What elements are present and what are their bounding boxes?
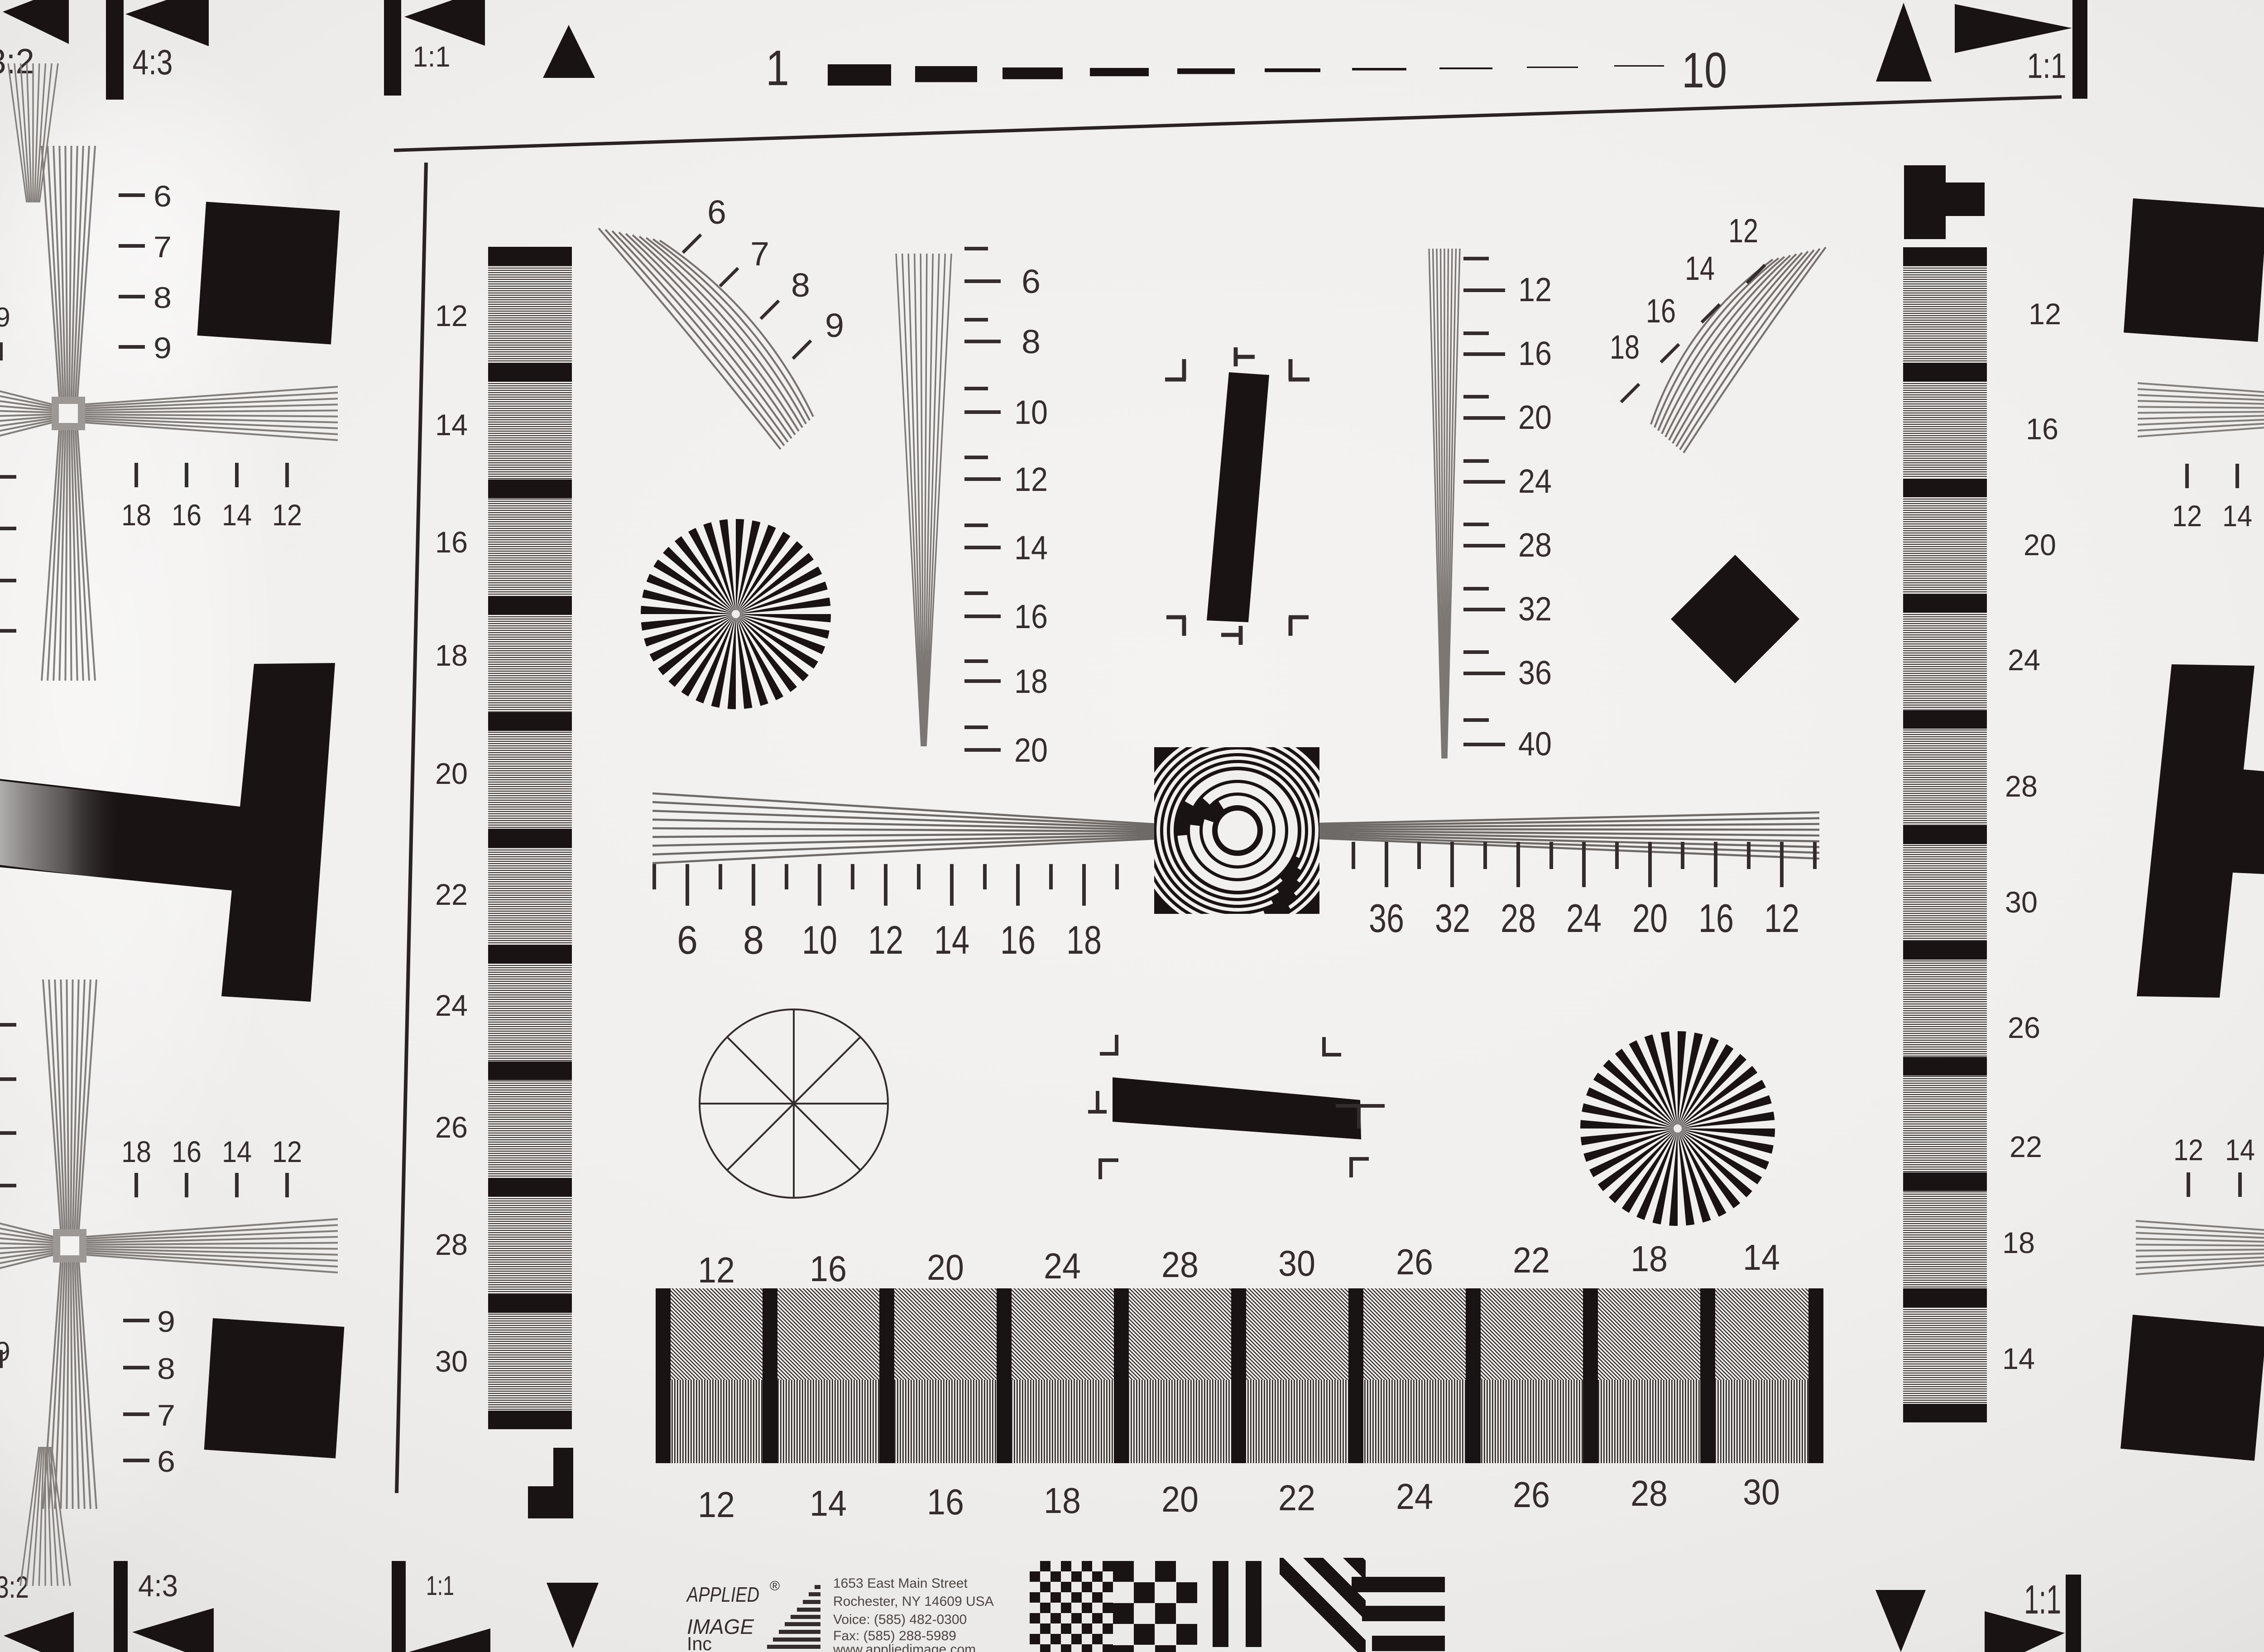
svg-text:24: 24 [1518,462,1552,500]
svg-text:32: 32 [1518,590,1552,628]
svg-text:3:2: 3:2 [0,41,34,81]
svg-text:28: 28 [1631,1473,1668,1513]
svg-text:20: 20 [1161,1479,1199,1519]
svg-text:4:3: 4:3 [138,1569,178,1603]
svg-text:26: 26 [435,1110,468,1144]
svg-text:18: 18 [435,639,468,672]
svg-text:6: 6 [677,917,698,962]
svg-text:1: 1 [766,40,789,96]
svg-text:4:3: 4:3 [133,42,173,82]
svg-text:14: 14 [2222,499,2252,533]
svg-text:16: 16 [435,525,468,559]
svg-text:®: ® [770,1579,780,1594]
svg-text:12: 12 [1764,896,1799,941]
svg-text:20: 20 [1518,399,1552,436]
svg-text:1653 East Main Street: 1653 East Main Street [833,1576,968,1591]
svg-text:22: 22 [435,878,468,911]
svg-text:16: 16 [1518,335,1552,372]
svg-text:14: 14 [2225,1133,2255,1167]
svg-text:14: 14 [1685,250,1715,287]
svg-text:1:1: 1:1 [413,40,451,73]
svg-text:18: 18 [121,498,151,532]
svg-text:12: 12 [2029,297,2061,331]
svg-text:7: 7 [153,230,172,264]
svg-text:9: 9 [157,1305,175,1338]
svg-text:18: 18 [1066,917,1102,962]
svg-text:18: 18 [2002,1226,2035,1259]
svg-text:12: 12 [698,1484,735,1525]
svg-text:12: 12 [868,917,903,962]
svg-text:36: 36 [1369,896,1404,941]
svg-text:1:1: 1:1 [2024,1577,2061,1623]
svg-text:14: 14 [1014,529,1048,567]
svg-text:28: 28 [2005,769,2038,803]
svg-text:18: 18 [121,1135,151,1168]
svg-text:12: 12 [1728,212,1758,250]
svg-text:24: 24 [435,989,468,1022]
svg-text:16: 16 [172,498,201,532]
svg-text:8: 8 [1022,323,1041,360]
svg-text:30: 30 [435,1345,468,1378]
svg-text:16: 16 [1698,896,1734,941]
svg-text:18: 18 [1014,663,1048,700]
svg-text:1:1: 1:1 [2027,46,2067,86]
svg-text:8: 8 [743,917,764,962]
svg-text:16: 16 [1646,292,1676,330]
svg-text:20: 20 [435,757,468,790]
svg-text:36: 36 [1518,654,1552,692]
svg-text:6: 6 [157,1445,175,1478]
svg-text:1:1: 1:1 [426,1570,454,1601]
svg-text:6: 6 [707,193,726,231]
svg-text:Inc: Inc [687,1633,712,1652]
svg-text:10: 10 [1682,43,1727,98]
svg-text:40: 40 [1518,725,1552,763]
svg-text:32: 32 [1435,896,1470,941]
svg-text:16: 16 [927,1482,964,1522]
svg-text:9: 9 [153,331,172,365]
svg-text:16: 16 [810,1249,847,1289]
svg-text:28: 28 [1161,1244,1199,1285]
svg-text:10: 10 [802,917,837,962]
svg-text:14: 14 [810,1483,847,1523]
svg-text:www.appliedimage.com: www.appliedimage.com [833,1642,976,1652]
svg-text:26: 26 [1513,1474,1550,1515]
svg-text:24: 24 [2008,643,2040,677]
svg-text:12: 12 [698,1250,735,1290]
svg-text:8: 8 [157,1352,175,1385]
svg-text:30: 30 [2005,885,2038,919]
svg-text:8: 8 [153,281,172,314]
svg-text:20: 20 [1014,731,1048,769]
svg-text:24: 24 [1566,896,1602,941]
svg-text:16: 16 [172,1135,201,1168]
svg-text:14: 14 [435,408,468,442]
svg-text:12: 12 [2173,1133,2203,1167]
svg-text:24: 24 [1044,1246,1081,1286]
svg-text:16: 16 [2026,412,2058,446]
svg-text:18: 18 [1044,1480,1081,1521]
svg-text:12: 12 [1014,461,1048,498]
svg-text:14: 14 [934,917,969,962]
svg-text:20: 20 [1632,896,1668,941]
svg-text:6: 6 [1022,263,1041,300]
svg-text:12: 12 [1518,271,1552,308]
svg-text:9: 9 [0,302,10,332]
svg-text:7: 7 [750,235,769,273]
svg-text:28: 28 [1501,896,1536,941]
svg-text:26: 26 [1396,1242,1433,1282]
svg-text:9: 9 [825,307,844,344]
svg-text:Voice: (585) 482-0300: Voice: (585) 482-0300 [833,1612,967,1627]
svg-text:14: 14 [1743,1237,1780,1277]
svg-text:18: 18 [1631,1239,1668,1279]
svg-text:30: 30 [1743,1472,1780,1512]
svg-text:22: 22 [2010,1130,2042,1163]
svg-text:18: 18 [1610,328,1640,366]
svg-text:7: 7 [157,1398,175,1432]
svg-text:28: 28 [1518,526,1552,564]
svg-text:10: 10 [1014,394,1048,431]
svg-text:26: 26 [2008,1011,2040,1044]
svg-text:20: 20 [2024,528,2056,562]
svg-text:8: 8 [791,266,810,304]
svg-text:14: 14 [2002,1342,2035,1375]
svg-text:Fax: (585) 288-5989: Fax: (585) 288-5989 [833,1628,956,1643]
svg-text:12: 12 [272,1135,302,1168]
svg-text:22: 22 [1278,1478,1315,1518]
svg-text:3:2: 3:2 [0,1570,29,1604]
svg-text:Rochester, NY 14609 USA: Rochester, NY 14609 USA [833,1594,994,1609]
svg-text:12: 12 [272,498,302,532]
svg-text:22: 22 [1513,1240,1550,1280]
svg-text:12: 12 [2172,499,2202,533]
svg-text:24: 24 [1396,1476,1433,1517]
svg-text:16: 16 [1000,917,1036,962]
svg-text:28: 28 [435,1228,468,1261]
svg-text:20: 20 [927,1247,964,1287]
svg-text:14: 14 [222,498,252,532]
svg-text:14: 14 [222,1135,252,1168]
svg-text:APPLIED: APPLIED [686,1583,759,1606]
svg-text:30: 30 [1278,1243,1315,1283]
svg-text:12: 12 [435,299,468,332]
svg-text:6: 6 [153,179,172,213]
svg-text:16: 16 [1014,598,1048,635]
